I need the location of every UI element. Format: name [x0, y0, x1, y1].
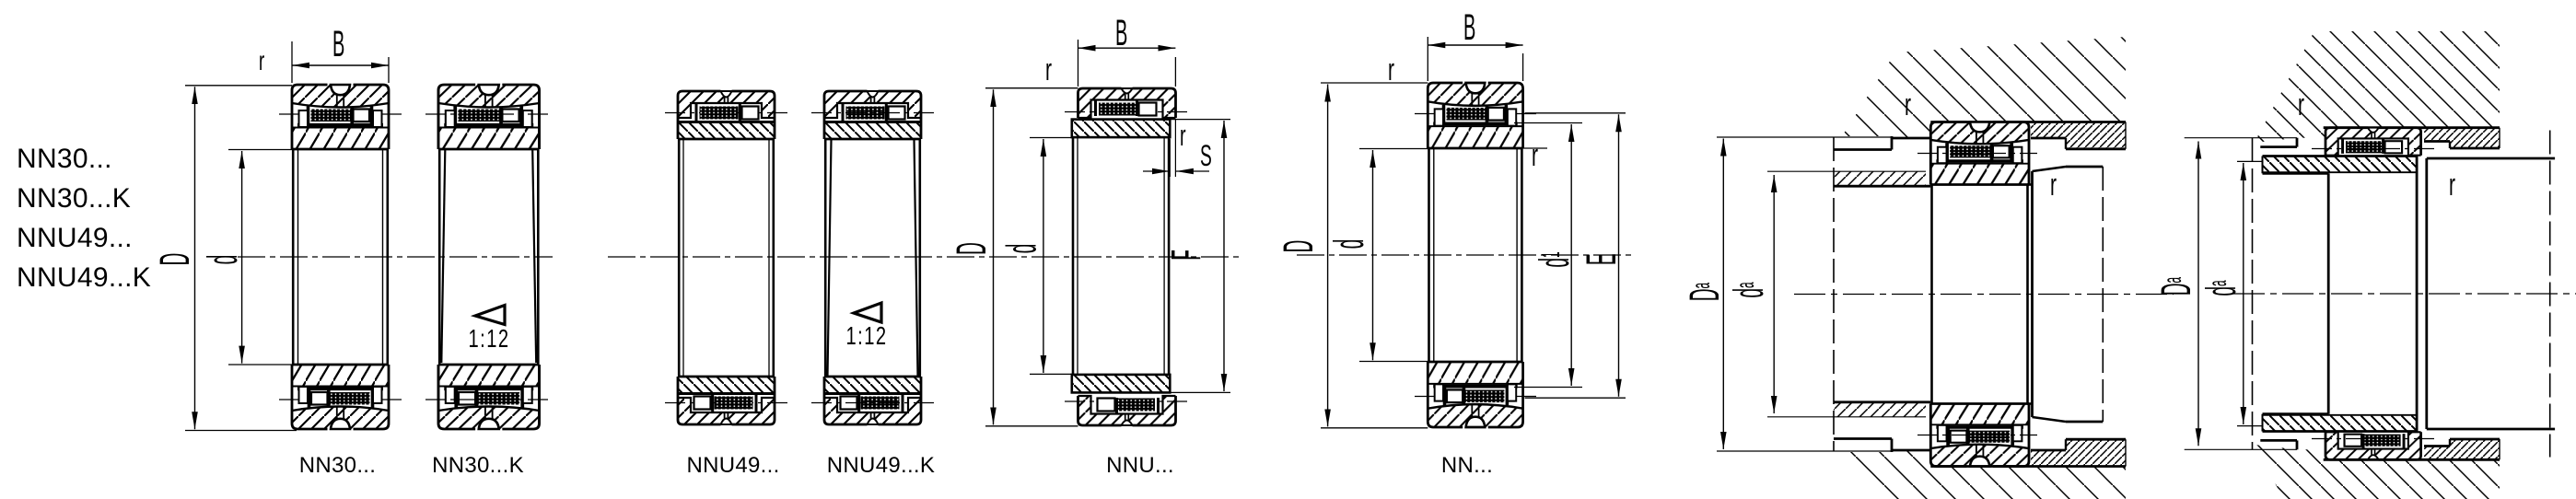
- svg-text:B: B: [1115, 11, 1127, 53]
- svg-text:d: d: [999, 244, 1045, 254]
- svg-text:S: S: [1200, 139, 1212, 172]
- svg-text:NNU49...: NNU49...: [686, 453, 779, 478]
- svg-text:1:12: 1:12: [469, 325, 510, 354]
- svg-text:NN30...K: NN30...K: [432, 453, 524, 478]
- svg-text:r: r: [2298, 87, 2304, 122]
- svg-text:NN30...K: NN30...K: [17, 183, 131, 214]
- svg-text:NN30...: NN30...: [17, 144, 112, 174]
- svg-text:r: r: [1905, 87, 1911, 122]
- svg-text:NNU49...K: NNU49...K: [17, 262, 151, 293]
- svg-text:NNU...: NNU...: [1106, 453, 1174, 478]
- svg-text:r: r: [2449, 167, 2455, 202]
- svg-text:1:12: 1:12: [846, 322, 888, 351]
- svg-text:E: E: [1579, 253, 1626, 265]
- svg-text:B: B: [332, 22, 344, 64]
- svg-text:r: r: [259, 46, 264, 77]
- svg-text:r: r: [1180, 119, 1186, 152]
- svg-text:d: d: [201, 255, 247, 265]
- svg-text:d: d: [1327, 239, 1373, 249]
- svg-text:D: D: [1276, 240, 1323, 253]
- svg-text:NN...: NN...: [1441, 453, 1493, 478]
- svg-text:r: r: [1532, 137, 1538, 172]
- svg-text:F: F: [1164, 249, 1210, 261]
- svg-text:NNU49...: NNU49...: [17, 223, 133, 253]
- svg-text:r: r: [1388, 52, 1394, 87]
- svg-text:D: D: [950, 242, 996, 255]
- svg-text:B: B: [1463, 6, 1475, 48]
- svg-text:NN30...: NN30...: [299, 453, 376, 478]
- svg-text:NNU49...K: NNU49...K: [827, 453, 935, 478]
- svg-text:r: r: [2050, 167, 2057, 202]
- svg-text:r: r: [1045, 52, 1052, 87]
- svg-text:D: D: [153, 253, 199, 266]
